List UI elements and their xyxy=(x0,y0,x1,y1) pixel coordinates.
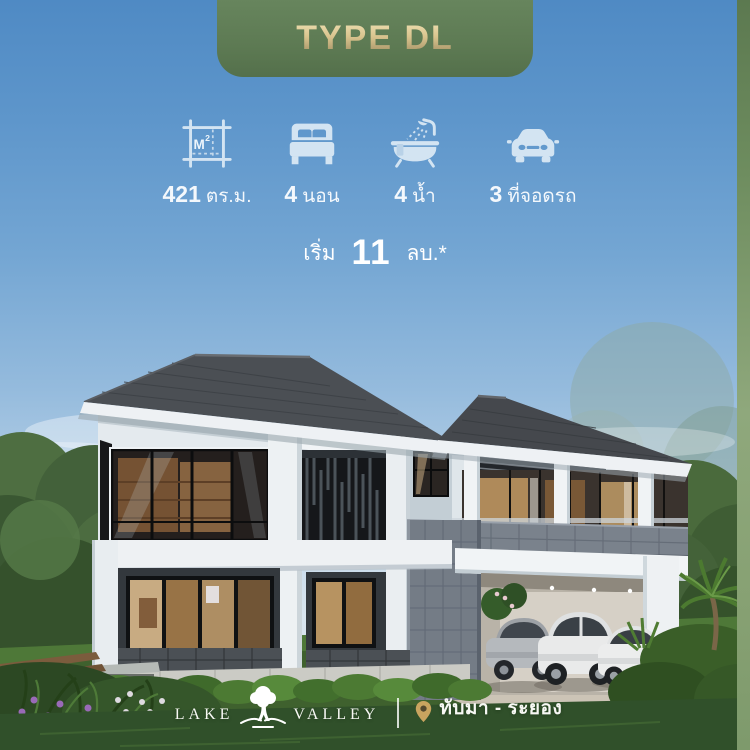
parking-icon xyxy=(471,108,595,172)
spec-bathrooms-label: 4น้ำ xyxy=(353,181,477,211)
svg-text:M: M xyxy=(193,137,204,152)
tree-logo-icon xyxy=(237,684,289,730)
location-label: ทับมา - ระยอง xyxy=(439,693,562,730)
bath-icon xyxy=(353,108,477,172)
brand-name-left: LAKE xyxy=(175,706,234,730)
footer-divider xyxy=(397,698,399,728)
location-pin-icon xyxy=(415,700,432,723)
spec-parking: 3ที่จอดรถ xyxy=(471,108,595,211)
price-prefix: เริ่ม xyxy=(303,237,335,273)
brand-name-right: VALLEY xyxy=(293,706,379,730)
spec-bathrooms: 4น้ำ xyxy=(353,108,477,211)
footer-brand-bar: LAKE VALLEY xyxy=(0,684,737,730)
price-suffix: ลบ.* xyxy=(407,237,447,273)
price-line: เริ่ม 11 ลบ.* xyxy=(0,233,750,273)
spec-row: M 2 421ตร.ม. 4นอน xyxy=(0,0,750,230)
spec-parking-label: 3ที่จอดรถ xyxy=(471,181,595,211)
svg-text:2: 2 xyxy=(205,133,210,143)
price-amount: 11 xyxy=(352,233,391,273)
property-poster: TYPE DL M 2 421ตร.ม. xyxy=(0,0,750,750)
